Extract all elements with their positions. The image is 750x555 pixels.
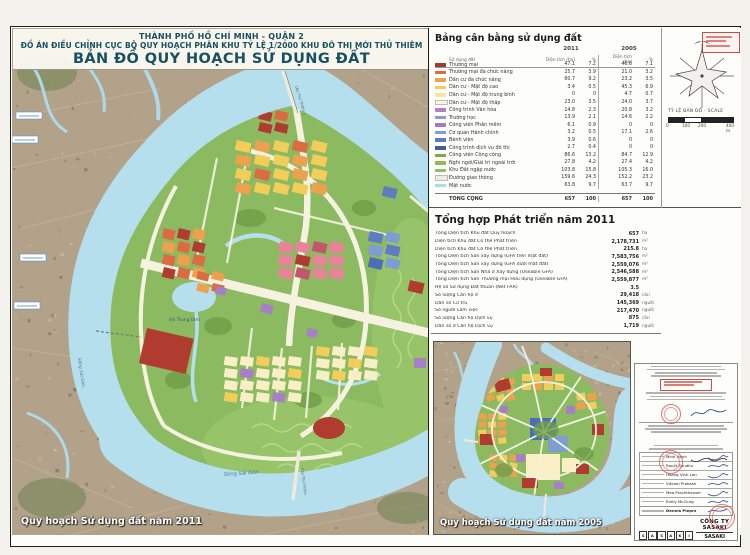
scale-tick: 0 [666,123,669,128]
pct-2005: 3.2 [634,70,655,75]
area-2011: 13.9 [544,115,577,120]
legend-swatch-cell [435,184,449,188]
balance-row-11: Công trình dịch vụ đô thị2.70.400 [435,144,655,152]
balance-row-12: Công viên Công cộng86.613.284.712.9 [435,152,655,160]
area-2005: 84.7 [603,153,634,158]
development-value: 1,719 [603,323,639,329]
balance-row-6: Công trình Văn hóa14.82.320.83.2 [435,106,655,114]
year-2011: 2011 [544,46,598,52]
land-use-name: Khu Đất ngập nước [449,167,544,173]
signatory-name: Emily McClurg [666,499,706,504]
balance-table-years: 2011 2005 [435,46,655,52]
legend-swatch-cell [435,123,449,127]
principal-name: Dennis Pieprz [666,508,706,513]
development-row-7: Hệ số Sử dụng Đất thuần (Net FAR)3.5 [435,284,661,292]
development-label: Tổng Diện tích Khu đất Quy hoạch [435,231,603,236]
total-a2: 657 [603,196,634,202]
development-label: Tổng Diện tích Sàn xây dựng (GFA trên mặ… [435,254,603,259]
map-sheet: Hồ Trung tâm Sông Sài Gòn Sông Sài Gòn C… [10,26,741,547]
development-title: Tổng hợp Phát triển năm 2011 [435,214,615,226]
legend-swatch [435,131,446,135]
signatory-role [640,483,666,485]
development-label: Tổng Diện tích Sàn xây dựng (GFA dưới mặ… [435,262,603,267]
legend-swatch-cell [435,108,449,112]
area-2011: 3.2 [544,130,577,135]
map-2011-canvas: Hồ Trung tâm Sông Sài Gòn Sông Sài Gòn C… [12,28,429,535]
land-use-name: Công trình Văn hóa [449,107,544,113]
pct-2011: 0.6 [577,138,598,143]
pct-2011: 7.2 [577,62,598,67]
sasaki-letter: A [648,531,656,539]
legend-swatch-cell [435,146,449,150]
development-label: Diện tích Khu đất Có thể Phát triển [435,247,603,252]
signatory-role [640,474,666,476]
signatory-signature [706,489,730,497]
legend-swatch [435,108,446,112]
pct-2011: 2.1 [577,115,598,120]
role-line [642,474,664,476]
pct-2005: 7.1 [634,62,655,67]
balance-row-7: Trường học13.92.114.62.2 [435,114,655,122]
map-2011-label: Quy hoạch Sử dụng đất năm 2011 [21,516,202,527]
balance-row-13: Nghỉ ngơi/Giải trí ngoài trời27.84.227.4… [435,159,655,167]
balance-table-title: Bảng cân bằng sử dụng đất [435,33,582,44]
pct-2005: 3.5 [634,77,655,82]
land-use-name: Công trình dịch vụ đô thị [449,145,544,151]
land-use-name: Dân cư - Mật độ cao [449,84,544,90]
legend-swatch-cell [435,161,449,165]
development-row-4: Tổng Diện tích Sàn xây dựng (GFA dưới mặ… [435,261,661,269]
map-2005: Quy hoạch Sử dụng đất năm 2005 [433,341,631,535]
signatory-row-2: Hoang Vinh Lan [640,471,732,480]
development-row-10: Số người Làm việc217,470người [435,307,661,315]
area-2011: 47.1 [544,62,577,67]
land-use-name: Thương mại đa chức năng [449,69,544,75]
development-row-9: Dân số Cư trú145,369người [435,299,661,307]
signatory-role [640,501,666,503]
development-value: 2,178,731 [603,239,639,245]
land-use-name: Trường học [449,115,544,121]
development-label: Diện tích Khu đất Có thể Phát triển [435,239,603,244]
development-label: Dân số ở Căn hộ Dịch vụ [435,324,603,329]
development-label: Số lượng Căn hộ ở [435,293,603,298]
sasaki-letter: S [657,531,665,539]
area-2005: 45.3 [603,85,634,90]
role-line [642,483,664,485]
land-use-name: Bệnh viện [449,137,544,143]
area-2005: 152.2 [603,175,634,180]
balance-row-0: Thương mại47.17.246.67.1 [435,61,655,69]
legend-swatch [435,146,446,150]
area-2011: 27.8 [544,160,577,165]
legend-swatch-cell [435,71,449,75]
info-panel: Bảng cân bằng sử dụng đất 2011 2005 Sử d… [429,28,741,535]
area-2011: 3.9 [544,138,577,143]
area-2011: 6.1 [544,123,577,128]
compass-rose-icon [662,36,742,114]
role-line [642,465,664,467]
development-row-0: Tổng Diện tích Khu đất Quy hoạch657ha [435,230,661,238]
development-unit: m² [639,262,661,267]
development-value: 29,418 [603,292,639,298]
legend-swatch [435,184,446,188]
sasaki-letter: I [685,531,693,539]
year-2005: 2005 [603,46,655,52]
legend-swatch-cell [435,154,449,158]
area-2011: 63.8 [544,183,577,188]
development-label: Số người Làm việc [435,308,603,313]
scale-label: TỶ LỆ BẢN ĐỒ - SCALE [668,109,723,114]
pct-2005: 6.9 [634,85,655,90]
map-2005-canvas [434,342,631,535]
land-use-name: Đường giao thông [449,175,544,181]
legend-swatch [435,100,448,106]
scale-tick: 200 [698,123,706,128]
total-p1: 100 [577,196,598,202]
development-row-12: Dân số ở Căn hộ Dịch vụ1,719người [435,322,661,330]
legend-swatch [435,161,446,165]
development-label: Hệ số Sử dụng Đất thuần (Net FAR) [435,285,603,290]
pct-2005: 2.6 [634,130,655,135]
balance-row-16: Mặt nước63.89.763.79.7 [435,182,655,190]
pct-2005: 0 [634,145,655,150]
round-stamp-2 [659,450,683,474]
pct-2005: 9.7 [634,183,655,188]
area-2005: 0 [603,138,634,143]
signatory-row-4: Mea Prachthauser [640,489,732,498]
area-2011: 0 [544,92,577,97]
signature-2 [689,452,729,466]
pct-2011: 9.7 [577,183,598,188]
development-label: Dân số Cư trú [435,301,603,306]
development-unit: m² [639,277,661,282]
development-unit: căn [639,293,661,298]
pct-2005: 0.7 [634,92,655,97]
legend-swatch [435,123,446,127]
area-2005: 27.4 [603,160,634,165]
company-name-en: SASAKI ASSOCIATES INC. [696,532,733,541]
development-value: 215.8 [603,246,639,252]
development-row-6: Tổng Diện tích Sàn Thương mại Hữu dụng (… [435,276,661,284]
legend-swatch-cell [435,100,449,106]
signature-1 [689,406,729,420]
development-value: 2,559,877 [603,277,639,283]
land-use-name: Dân cư - Mật độ trung bình [449,92,544,98]
legend-swatch [435,71,446,75]
area-2011: 25.7 [544,70,577,75]
development-value: 217,470 [603,308,639,314]
pct-2011: 0.9 [577,123,598,128]
development-value: 145,369 [603,300,639,306]
total-a1: 657 [544,196,577,202]
development-label: Số lượng Căn hộ Dịch vụ [435,316,603,321]
pct-2011: 4.2 [577,160,598,165]
signatory-role [640,456,666,458]
development-unit: m² [639,270,661,275]
balance-row-2: Dân cư đa chức năng60.79.223.23.5 [435,76,655,84]
legend-swatch [435,86,446,90]
land-use-name: Mặt nước [449,183,544,189]
area-2011: 23.0 [544,100,577,105]
pct-2005: 2.2 [634,115,655,120]
pct-2011: 2.3 [577,108,598,113]
legend-swatch-cell [435,169,449,173]
legend-swatch-cell [435,138,449,142]
area-2005: 4.7 [603,92,634,97]
area-2011: 159.6 [544,175,577,180]
development-row-11: Số lượng Căn hộ Dịch vụ875căn [435,315,661,323]
development-row-1: Diện tích Khu đất Có thể Phát triển2,178… [435,238,661,246]
pct-2011: 13.2 [577,153,598,158]
scale-bar [668,117,734,123]
development-value: 657 [603,231,639,237]
sasaki-letter: S [639,531,647,539]
role-line [642,501,664,503]
development-label: Tổng Diện tích Sàn Nhà ở Xây dựng (Useab… [435,270,603,275]
area-2005: 63.7 [603,183,634,188]
signatory-signature [706,480,730,488]
total-p2: 100 [634,196,655,202]
development-unit: m² [639,239,661,244]
area-2005: 20.8 [603,108,634,113]
pct-2005: 3.2 [634,108,655,113]
development-row-2: Diện tích Khu đất Có thể Phát triển215.8… [435,245,661,253]
sasaki-letter: K [676,531,684,539]
development-unit: ha [639,231,661,236]
map-2005-label: Quy hoạch Sử dụng đất năm 2005 [440,518,602,528]
pct-2005: 12.9 [634,153,655,158]
pct-2005: 16.0 [634,168,655,173]
development-unit: căn [639,316,661,321]
sasaki-letter: A [667,531,675,539]
pct-2005: 0 [634,123,655,128]
balance-row-10: Bệnh viện3.90.600 [435,136,655,144]
development-row-5: Tổng Diện tích Sàn Nhà ở Xây dựng (Useab… [435,268,661,276]
legend-swatch [435,93,446,97]
area-2005: 17.1 [603,130,634,135]
area-2005: 24.0 [603,100,634,105]
compass-area: TỶ LỆ BẢN ĐỒ - SCALE 0100200400 m [661,28,742,208]
title-main: BẢN ĐỒ QUY HOẠCH SỬ DỤNG ĐẤT [13,51,429,67]
pct-2011: 3.9 [577,70,598,75]
signatory-name: Vikram Prakash [666,481,706,486]
legend-swatch-cell [435,116,449,120]
map-2011: Hồ Trung tâm Sông Sài Gòn Sông Sài Gòn C… [12,28,429,535]
area-2005: 14.6 [603,115,634,120]
land-use-name: Dân cư - Mật độ thấp [449,100,544,106]
date-stamp [660,379,712,391]
area-2005: 0 [603,145,634,150]
signatory-role [640,492,666,494]
land-use-name: Nghỉ ngơi/Giải trí ngoài trời [449,160,544,166]
pct-2005: 3.7 [634,100,655,105]
land-use-name: Công viên Công cộng [449,152,544,158]
development-unit: người [639,308,661,313]
balance-row-9: Cơ quan Hành chính3.20.517.12.6 [435,129,655,137]
legend-swatch [435,175,448,181]
legend-swatch [435,154,446,158]
development-value: 7,583,756 [603,254,639,260]
area-2005: 23.2 [603,77,634,82]
title-banner: THÀNH PHỐ HỒ CHÍ MINH - QUẬN 2 ĐỒ ÁN ĐIỀ… [13,29,429,70]
legend-swatch [435,78,446,82]
balance-row-4: Dân cư - Mật độ trung bình004.70.7 [435,91,655,99]
area-2011: 103.8 [544,168,577,173]
title-project: ĐỒ ÁN ĐIỀU CHỈNH CỤC BỘ QUY HOẠCH PHÂN K… [13,41,429,50]
signatory-role [640,465,666,467]
pct-2011: 24.3 [577,175,598,180]
development-unit: m² [639,254,661,259]
round-stamp-1 [661,404,681,424]
development-unit: người [639,301,661,306]
land-use-name: Công viên Phần mềm [449,122,544,128]
legend-swatch-cell [435,86,449,90]
development-row-8: Số lượng Căn hộ ở29,418căn [435,292,661,300]
scale-tick: 400 m [726,123,736,133]
land-use-name: Dân cư đa chức năng [449,77,544,83]
balance-row-3: Dân cư - Mật độ cao3.40.545.36.9 [435,84,655,92]
legend-swatch-cell [435,131,449,135]
pct-2011: 0.5 [577,85,598,90]
pct-2011: 9.2 [577,77,598,82]
legend-swatch-cell [435,63,449,67]
scale-tick: 100 [682,123,690,128]
title-city: THÀNH PHỐ HỒ CHÍ MINH - QUẬN 2 [13,32,429,41]
legend-swatch [435,169,446,173]
area-2011: 60.7 [544,77,577,82]
development-value: 2,559,076 [603,262,639,268]
area-2005: 46.6 [603,62,634,67]
development-rows: Tổng Diện tích Khu đất Quy hoạch657haDiệ… [435,230,661,330]
role-line [642,456,664,458]
land-use-name: Thương mại [449,62,544,68]
pct-2005: 23.2 [634,175,655,180]
sasaki-letters: SASAKI [639,531,693,539]
development-value: 2,546,588 [603,269,639,275]
pct-2011: 0.4 [577,145,598,150]
pct-2011: 3.5 [577,100,598,105]
legend-swatch [435,116,446,120]
balance-row-15: Đường giao thông159.624.3152.223.2 [435,174,655,182]
balance-row-5: Dân cư - Mật độ thấp23.03.524.03.7 [435,99,655,107]
area-2011: 14.8 [544,108,577,113]
signature-block: Minh HanhRanjit SandhuHoang Vinh LanVikr… [634,363,738,541]
signatory-signature [706,471,730,479]
total-label: TỔNG CỘNG [449,196,544,202]
development-unit: người [639,324,661,329]
land-use-name: Cơ quan Hành chính [449,130,544,136]
pct-2005: 0 [634,138,655,143]
area-2005: 0 [603,123,634,128]
area-2005: 21.0 [603,70,634,75]
development-value: 875 [603,315,639,321]
development-value: 3.5 [603,285,639,291]
area-2011: 3.4 [544,85,577,90]
development-label: Tổng Diện tích Sàn Thương mại Hữu dụng (… [435,277,603,282]
area-2005: 105.3 [603,168,634,173]
legend-swatch-cell [435,93,449,97]
balance-row-1: Thương mại đa chức năng25.73.921.03.2 [435,69,655,77]
balance-row-14: Khu Đất ngập nước103.815.8105.316.0 [435,167,655,175]
pct-2011: 15.8 [577,168,598,173]
round-stamp-3 [709,504,735,530]
balance-table-total: TỔNG CỘNG 657 100 657 100 [435,193,655,202]
legend-swatch-cell [435,175,449,181]
legend-swatch [435,63,446,67]
signatory-row-3: Vikram Prakash [640,480,732,489]
legend-swatch [435,138,446,142]
legend-swatch-cell [435,78,449,82]
balance-row-8: Công viên Phần mềm6.10.900 [435,121,655,129]
balance-table-rows: Thương mại47.17.246.67.1Thương mại đa ch… [435,61,655,189]
area-2011: 86.6 [544,153,577,158]
pct-2011: 0 [577,92,598,97]
signatory-name: Mea Prachthauser [666,490,706,495]
development-row-3: Tổng Diện tích Sàn xây dựng (GFA trên mặ… [435,253,661,261]
area-2011: 2.7 [544,145,577,150]
development-unit: ha [639,247,661,252]
role-line [642,492,664,494]
pct-2011: 0.5 [577,130,598,135]
pct-2005: 4.2 [634,160,655,165]
